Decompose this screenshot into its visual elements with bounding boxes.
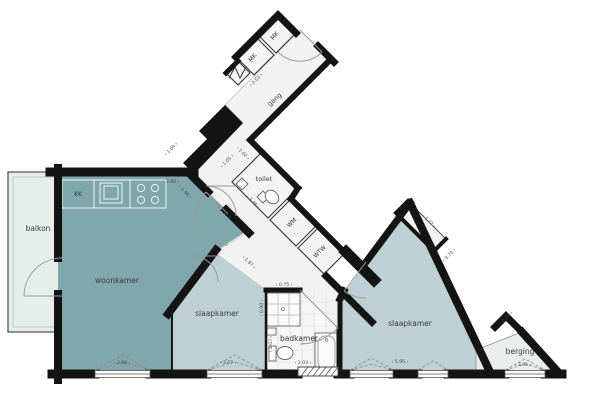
- dim-woonkamer: ‹ 3.88 ›: [114, 360, 131, 366]
- wc-bowl-icon: [277, 347, 293, 360]
- dim-hal: ‹ 1.04 ›: [163, 141, 179, 157]
- dim-slaapkamer-2: ‹ 5.95 ›: [392, 359, 409, 365]
- washbasin-icon: [267, 328, 276, 335]
- floorplan-svg: balkon woonkamer slaapkamer badkamer sla…: [0, 0, 600, 400]
- label-balkon: balkon: [26, 224, 51, 233]
- label-berging: berging: [506, 347, 535, 356]
- dim-slaapkamer-1: ‹ 3.07 ›: [220, 360, 237, 366]
- dim-badkamer-v2: ‹ 2.07 ›: [268, 335, 274, 352]
- label-woonkamer: woonkamer: [95, 276, 140, 285]
- dim-berging: ‹ 3.95 ›: [515, 362, 532, 368]
- dim-kitchen: ‹ 3.80 ›: [163, 179, 180, 185]
- dim-niche-2: ‹ 0.70 ›: [441, 247, 457, 263]
- label-toilet: toilet: [256, 175, 273, 183]
- vent-grille: [298, 367, 338, 376]
- dim-badkamer-gap: ‹ 0.75 ›: [276, 282, 293, 288]
- shower-icon: [267, 293, 300, 326]
- label-badkamer: badkamer: [280, 334, 319, 343]
- label-slaapkamer-1: slaapkamer: [195, 309, 240, 318]
- label-kk: KK: [74, 192, 82, 198]
- floorplan-page: balkon woonkamer slaapkamer badkamer sla…: [0, 0, 600, 400]
- dim-badkamer-w: ‹ 2.03 ›: [295, 360, 312, 366]
- dim-badkamer-v1: ‹ 0.90 ›: [259, 299, 265, 316]
- label-slaapkamer-2: slaapkamer: [388, 319, 433, 328]
